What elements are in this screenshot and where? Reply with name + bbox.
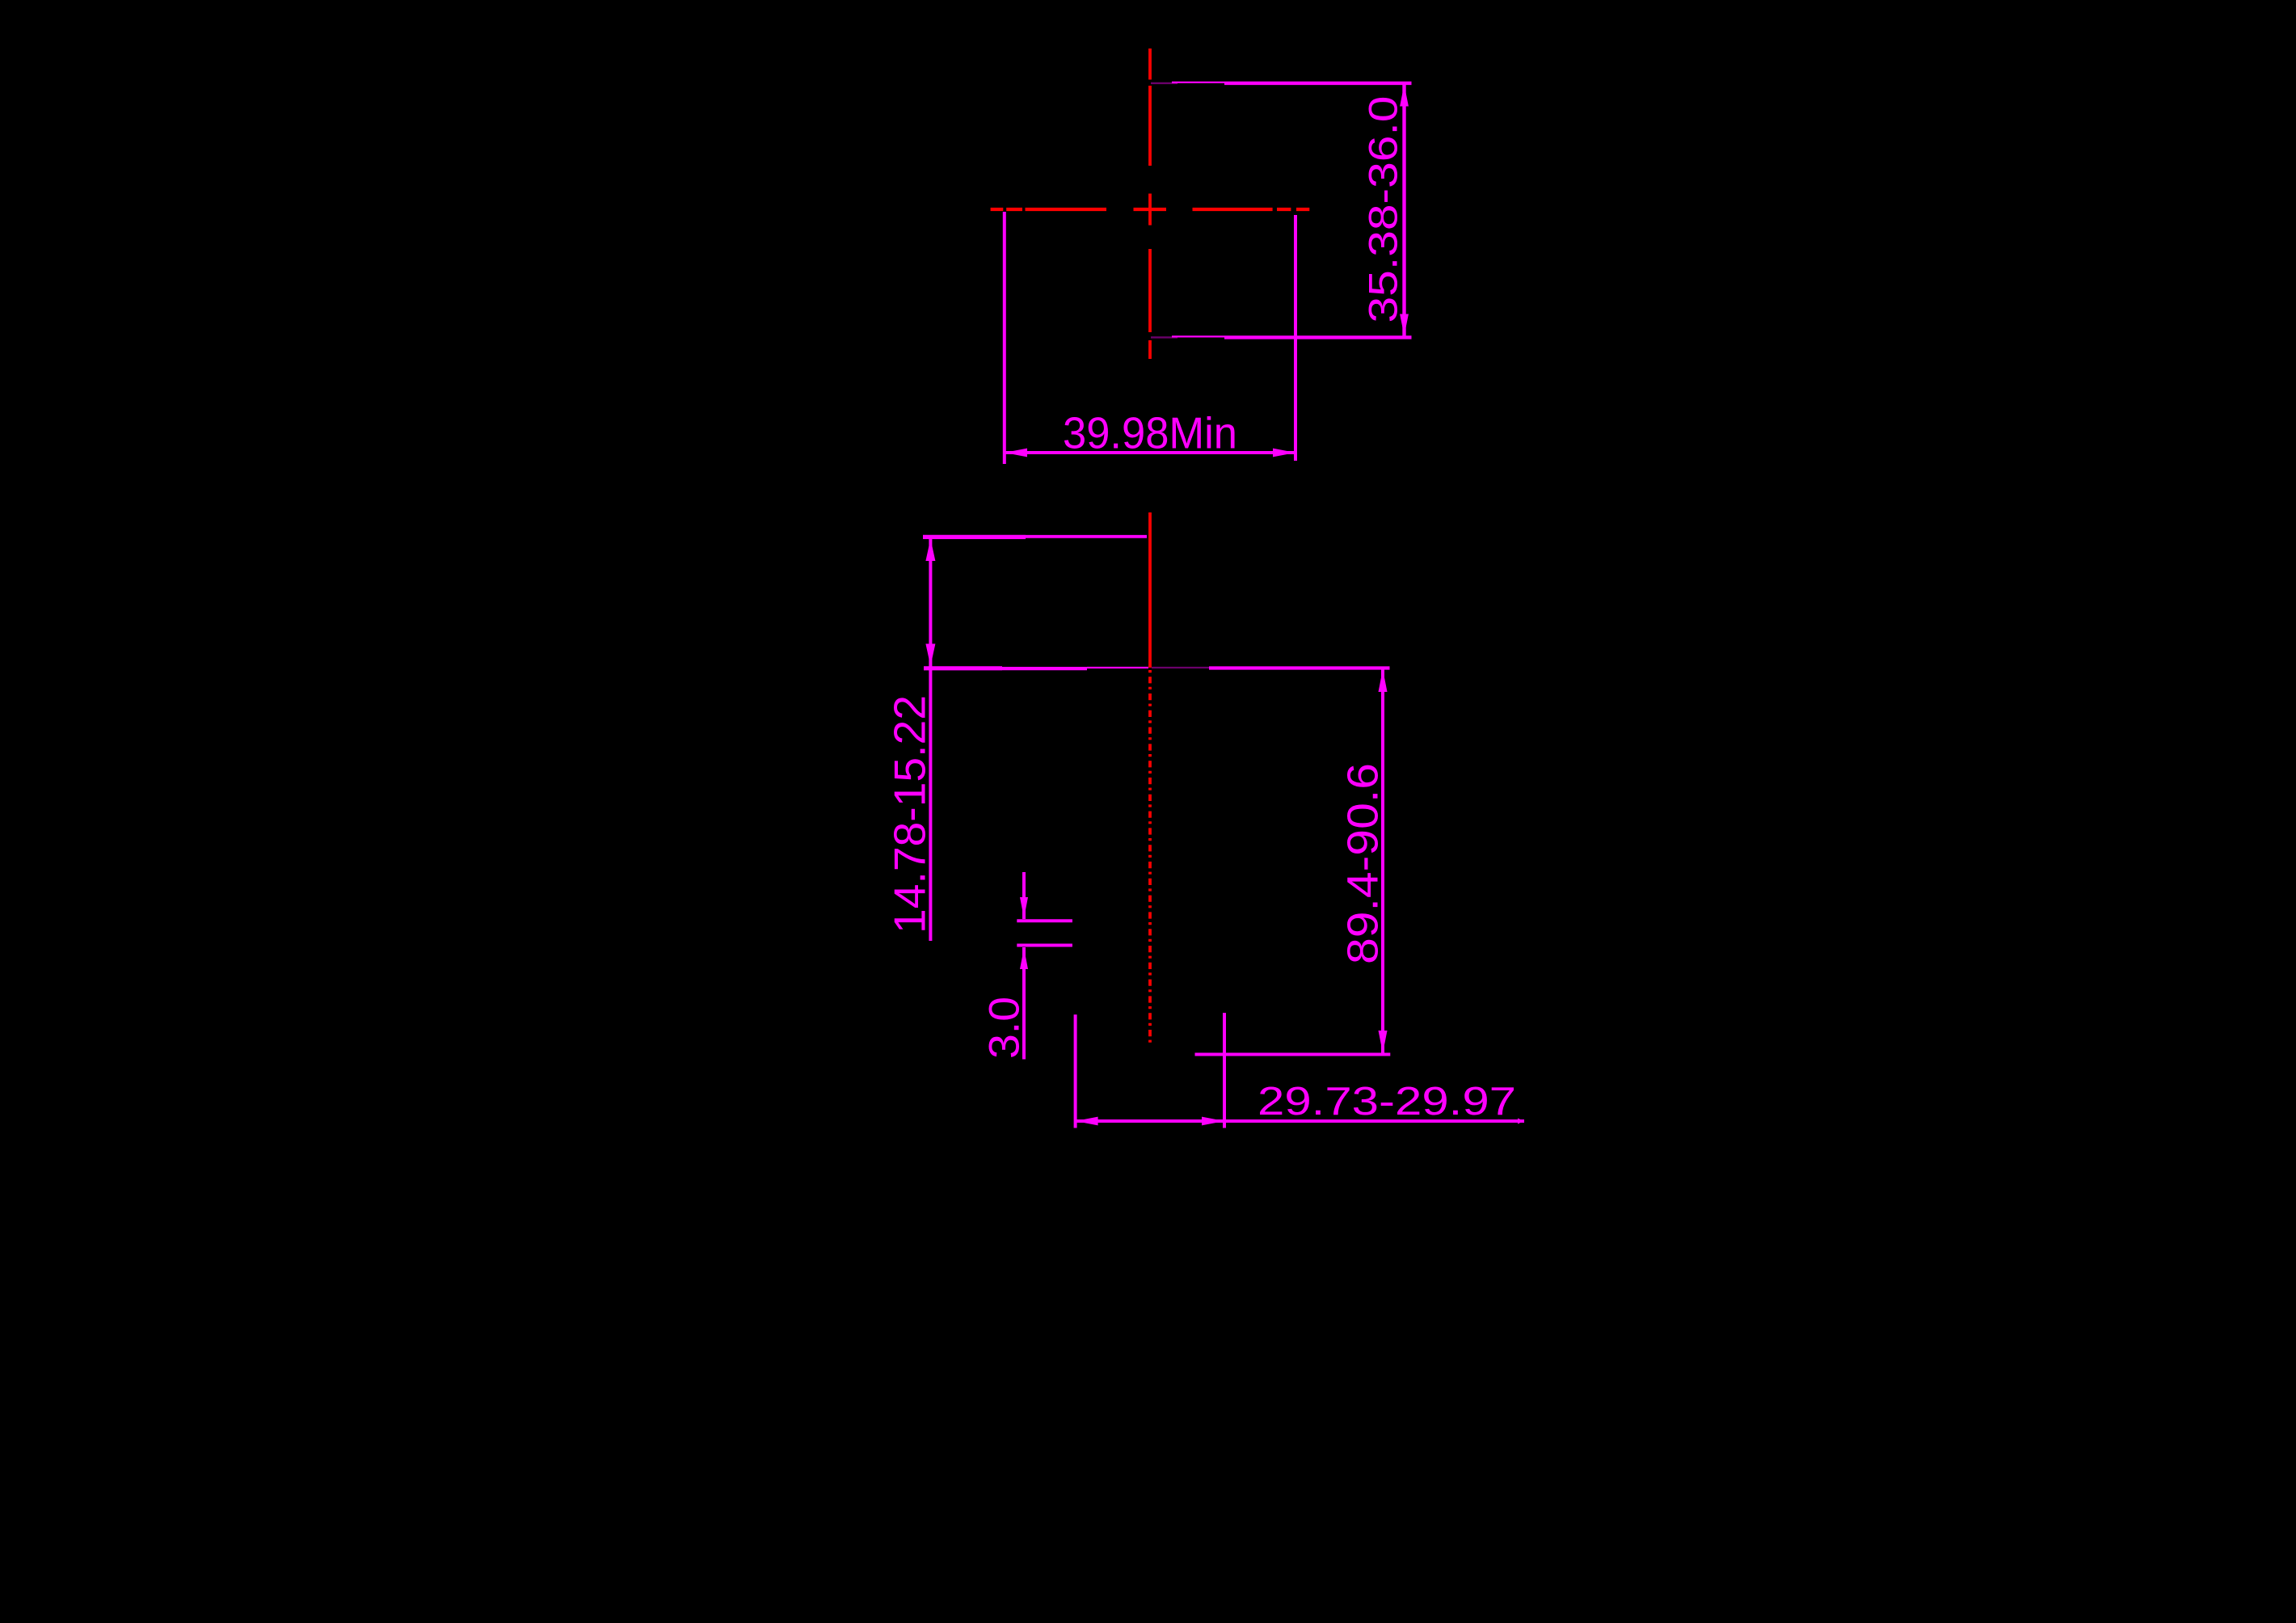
svg-text:29.73-29.97: 29.73-29.97	[1258, 1080, 1516, 1123]
svg-text:89.4-90.6: 89.4-90.6	[1339, 763, 1388, 964]
svg-text:35.38-36.0: 35.38-36.0	[1361, 96, 1406, 323]
svg-text:3.0: 3.0	[981, 997, 1029, 1059]
svg-text:14.78-15.22: 14.78-15.22	[885, 695, 935, 934]
svg-text:39.98Min: 39.98Min	[1063, 408, 1237, 458]
